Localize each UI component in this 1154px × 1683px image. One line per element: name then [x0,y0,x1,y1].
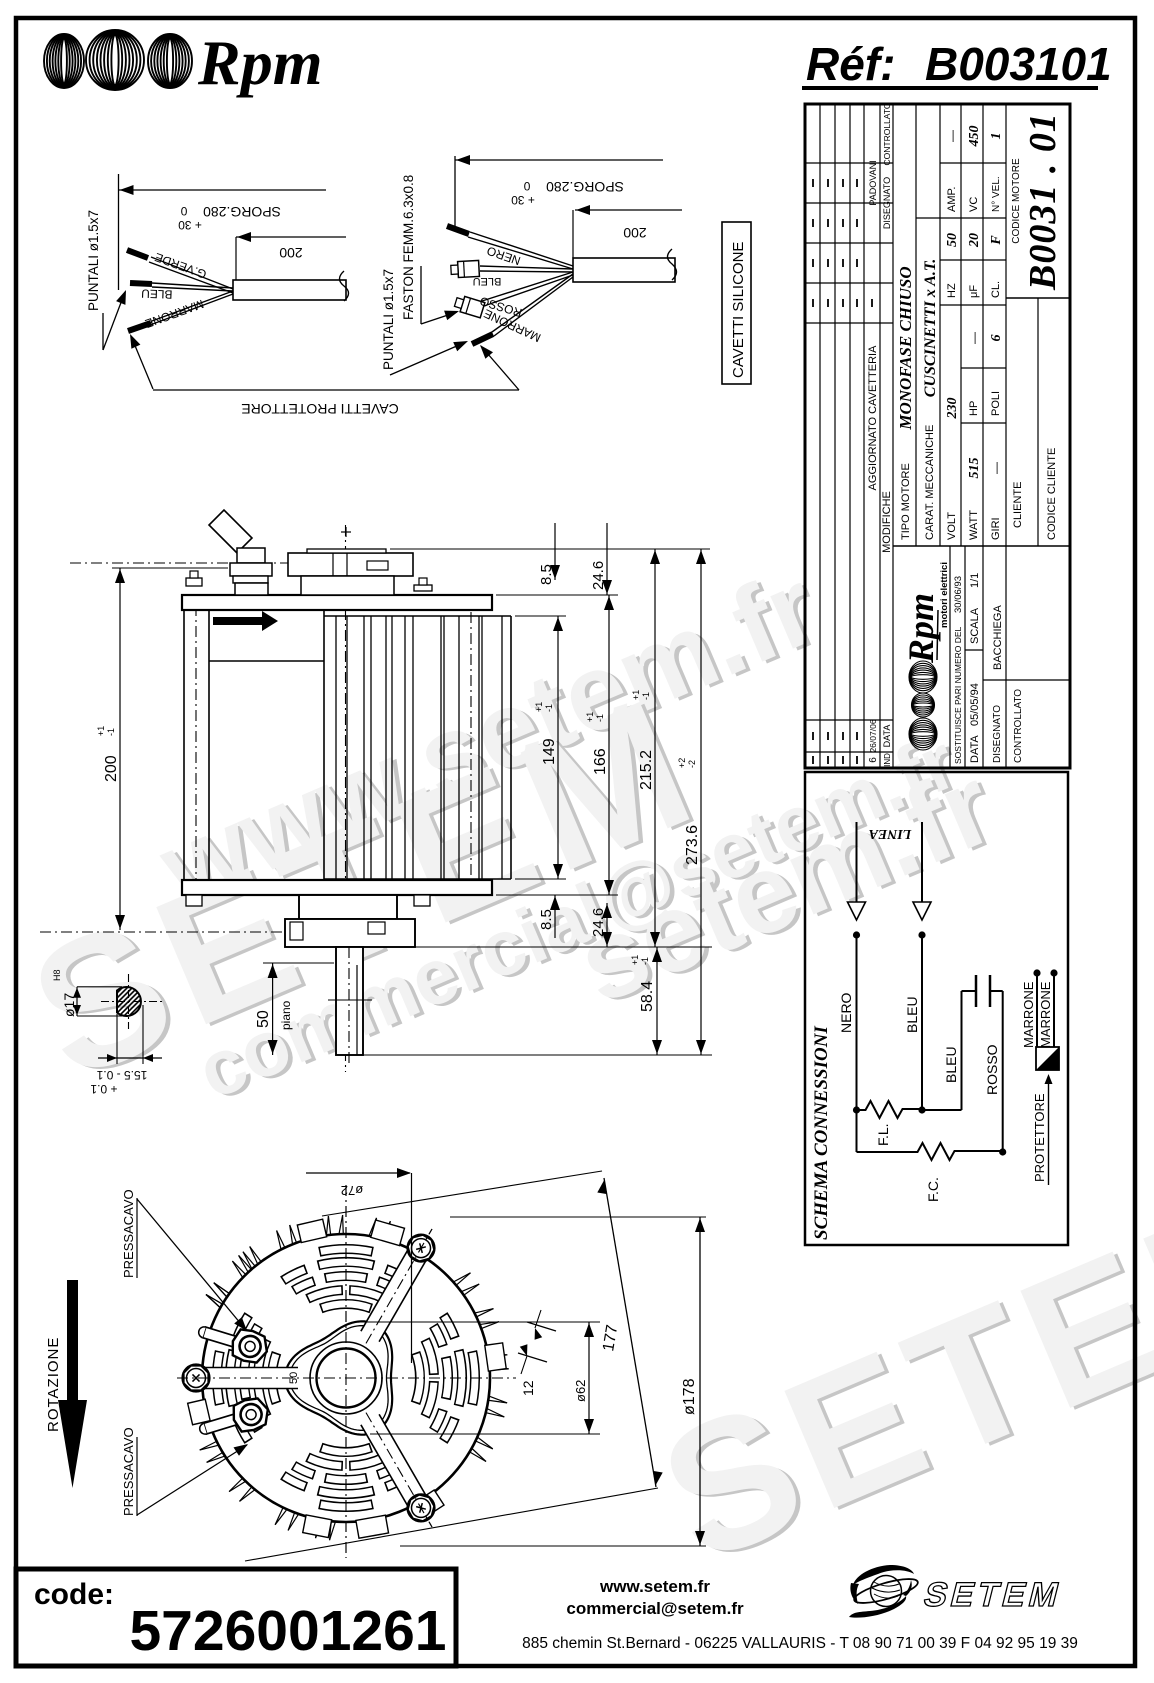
svg-text:DATA: DATA [969,735,981,763]
svg-text:LINEA: LINEA [869,826,913,841]
svg-text:Réf:: Réf: [806,38,895,90]
svg-text:CUSCINETTI x A.T.: CUSCINETTI x A.T. [922,259,939,397]
svg-text:VOLT: VOLT [946,512,958,540]
svg-text:8.5: 8.5 [538,909,555,930]
svg-text:6: 6 [989,335,1004,342]
svg-text:www.setem.fr: www.setem.fr [599,1577,710,1596]
svg-text:μF: μF [968,285,980,298]
svg-text:200: 200 [623,225,647,241]
svg-text:AGGIORNATO CAVETTERIA: AGGIORNATO CAVETTERIA [867,345,879,491]
svg-text:CL.: CL. [990,281,1002,298]
svg-text:12: 12 [520,1380,536,1396]
svg-text:SETEM: SETEM [920,1576,1066,1613]
svg-text:885 chemin St.Bernard - 0622: 885 chemin St.Bernard - 06225 VALLAURIS … [522,1635,1078,1652]
svg-text:+1: +1 [96,726,106,736]
svg-text:BACCHIEGA: BACCHIEGA [992,605,1004,670]
svg-text:SPORG.280: SPORG.280 [546,179,624,195]
svg-text:1: 1 [989,133,1004,140]
svg-text:HZ: HZ [946,283,958,298]
svg-text:0: 0 [523,179,530,193]
svg-text:+1: +1 [631,690,641,700]
svg-text:-1: -1 [544,704,554,712]
svg-text:-1: -1 [106,728,116,736]
svg-text:AMP.: AMP. [946,187,958,212]
svg-text:ø72: ø72 [341,1183,363,1198]
svg-text:piano: piano [279,1000,293,1030]
svg-text:CLIENTE: CLIENTE [1012,482,1024,528]
svg-text:B003101: B003101 [925,38,1112,90]
svg-text:PUNTALI ø1.5x7: PUNTALI ø1.5x7 [86,210,101,311]
svg-text:BLEU: BLEU [141,286,173,301]
svg-text:1/1: 1/1 [969,573,981,588]
svg-text:20: 20 [967,233,982,248]
svg-text:ø17: ø17 [61,993,77,1017]
svg-text:BLEU: BLEU [943,1046,959,1083]
svg-text:NERO: NERO [838,992,854,1033]
svg-text:F: F [989,235,1004,246]
svg-text:-1: -1 [641,692,651,700]
svg-text:MARRONE: MARRONE [1021,981,1036,1048]
svg-text:SCALA: SCALA [969,607,981,644]
svg-text:+ 30: + 30 [511,193,535,207]
svg-text:ø178: ø178 [681,1378,698,1415]
svg-text:PADOVANI: PADOVANI [868,160,878,205]
svg-text:58.4: 58.4 [639,981,656,1012]
svg-text:+ 30: + 30 [178,218,202,232]
svg-text:ROTAZIONE: ROTAZIONE [45,1337,62,1432]
svg-text:GIRI: GIRI [990,517,1002,540]
svg-text:200: 200 [103,755,120,782]
svg-text:+1: +1 [534,702,544,712]
svg-text:Rpm: Rpm [901,593,941,664]
svg-text:CAVETTI SILICONE: CAVETTI SILICONE [730,242,747,378]
svg-text:15.5 - 0.1: 15.5 - 0.1 [96,1068,147,1082]
svg-text:DISEGNATO: DISEGNATO [882,177,892,229]
svg-text:ROSSO: ROSSO [984,1044,1000,1095]
svg-text:166: 166 [592,748,609,775]
svg-text:VC: VC [968,197,980,212]
svg-text:0: 0 [180,204,187,218]
svg-text:200: 200 [279,245,303,261]
svg-text:BLEU: BLEU [904,996,920,1033]
svg-text:+1: +1 [630,955,640,965]
svg-text:CODICE CLIENTE: CODICE CLIENTE [1046,448,1058,540]
svg-text:POLI: POLI [990,391,1002,416]
svg-text:CONTROLLATO: CONTROLLATO [1013,689,1024,763]
svg-text:+2: +2 [677,758,687,768]
svg-text:motori elettrici: motori elettrici [939,562,950,628]
svg-text:450: 450 [967,126,982,148]
svg-text:05/05/94: 05/05/94 [969,683,981,726]
svg-text:PRESSACAVO: PRESSACAVO [121,1427,136,1516]
svg-text:DATA: DATA [882,725,892,748]
svg-text:F.C.: F.C. [925,1177,941,1202]
svg-text:—: — [989,462,1003,474]
svg-text:CARAT. MECCANICHE: CARAT. MECCANICHE [924,425,936,540]
svg-text:-1: -1 [595,714,605,722]
svg-text:—: — [967,332,981,344]
svg-text:CONTROLLATO: CONTROLLATO [882,102,892,165]
svg-text:WATT: WATT [968,510,980,540]
svg-text:ø62: ø62 [573,1380,588,1402]
svg-text:50: 50 [945,233,960,247]
svg-text:PRESSACAVO: PRESSACAVO [121,1189,136,1278]
svg-text:IND: IND [883,753,892,767]
svg-text:5726001261: 5726001261 [129,1599,446,1663]
svg-text:215.2: 215.2 [638,750,655,790]
svg-text:MONOFASE CHIUSO: MONOFASE CHIUSO [896,266,915,430]
svg-text:6: 6 [868,757,879,763]
svg-text:CODICE MOTORE: CODICE MOTORE [1011,158,1022,244]
svg-text:50: 50 [255,1010,272,1028]
svg-text:MODIFICHE: MODIFICHE [881,491,893,553]
svg-text:SCHEMA CONNESSIONI: SCHEMA CONNESSIONI [811,1026,832,1240]
svg-text:8.5: 8.5 [538,564,555,585]
svg-text:BLEU: BLEU [473,275,502,287]
svg-text:+1: +1 [585,712,595,722]
svg-text:code:: code: [34,1578,114,1611]
svg-text:DISEGNATO: DISEGNATO [992,705,1003,763]
svg-text:B0031 . 01: B0031 . 01 [1022,112,1064,291]
svg-text:149: 149 [541,738,558,765]
svg-text:-1: -1 [640,957,650,965]
svg-text:Rpm: Rpm [197,27,322,98]
svg-text:F.L.: F.L. [875,1123,891,1146]
svg-text:PROTETTORE: PROTETTORE [1032,1093,1047,1182]
svg-text:MARRONE: MARRONE [1038,981,1053,1048]
svg-text:HP: HP [968,401,980,416]
svg-text:+ 0.1: + 0.1 [90,1082,117,1096]
svg-text:PUNTALI ø1.5x7: PUNTALI ø1.5x7 [381,269,396,370]
svg-text:515: 515 [967,458,982,479]
svg-text:H8: H8 [52,969,62,981]
svg-text:26/07/06: 26/07/06 [868,719,878,752]
svg-text:—: — [945,130,959,142]
svg-text:CAVETTI PROTETTORE: CAVETTI PROTETTORE [241,401,398,417]
svg-text:230: 230 [945,398,960,420]
svg-text:FASTON FEMM.6.3x0.8: FASTON FEMM.6.3x0.8 [401,175,416,320]
svg-text:273.6: 273.6 [684,825,701,865]
svg-text:SPORG.280: SPORG.280 [203,204,281,220]
svg-text:commercial@setem.fr: commercial@setem.fr [566,1599,744,1618]
svg-text:24.6: 24.6 [590,908,607,937]
svg-text:-2: -2 [687,760,697,768]
svg-text:30/06/93: 30/06/93 [953,576,964,613]
svg-text:SOSTITUISCE PARI NUMERO DEL: SOSTITUISCE PARI NUMERO DEL [953,626,963,764]
svg-text:24.6: 24.6 [590,561,607,590]
svg-text:TIPO MOTORE: TIPO MOTORE [900,463,912,540]
svg-text:N° VEL.: N° VEL. [991,176,1002,212]
